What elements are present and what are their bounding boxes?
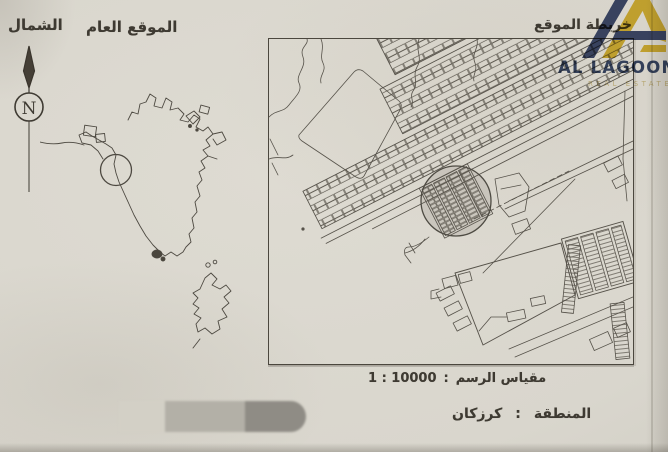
region-row: المنطقة : كرزكان — [452, 406, 591, 422]
north-label: الشمال — [8, 16, 63, 34]
scale-value: 1 : 10000 — [368, 371, 437, 386]
region-separator: : — [515, 406, 521, 422]
general-location-map — [40, 56, 240, 356]
location-circle-marker — [101, 155, 132, 186]
al-lagoon-logo-mark-icon — [582, 0, 666, 58]
scale-label: مقياس الرسم — [456, 371, 546, 386]
bahrain-outline — [86, 94, 213, 256]
small-island-outline — [193, 273, 231, 334]
redaction-bar — [119, 401, 306, 432]
scan-bottom-shadow — [0, 443, 668, 452]
region-value: كرزكان — [452, 406, 502, 422]
site-highlight-circle — [421, 166, 491, 236]
region-label: المنطقة — [534, 406, 591, 422]
redaction-segment — [245, 401, 306, 432]
general-location-label: الموقع العام — [86, 18, 177, 36]
redaction-segment — [119, 401, 165, 432]
logo-title: AL LAGOON — [558, 58, 668, 77]
redaction-segment — [165, 401, 245, 432]
compass-arrow-icon — [24, 46, 35, 88]
logo-subtitle: REAL ESTATE — [588, 80, 668, 88]
scale-row: مقياس الرسم : 1 : 10000 — [368, 371, 546, 386]
scale-separator: : — [444, 371, 449, 386]
compass-n-letter: N — [22, 99, 37, 119]
al-lagoon-logo: AL LAGOON REAL ESTATE — [552, 0, 668, 100]
north-compass-icon: N — [10, 45, 50, 197]
scanned-site-plan-page: الشمال الموقع العام خريطة الموقع N — [0, 0, 668, 452]
